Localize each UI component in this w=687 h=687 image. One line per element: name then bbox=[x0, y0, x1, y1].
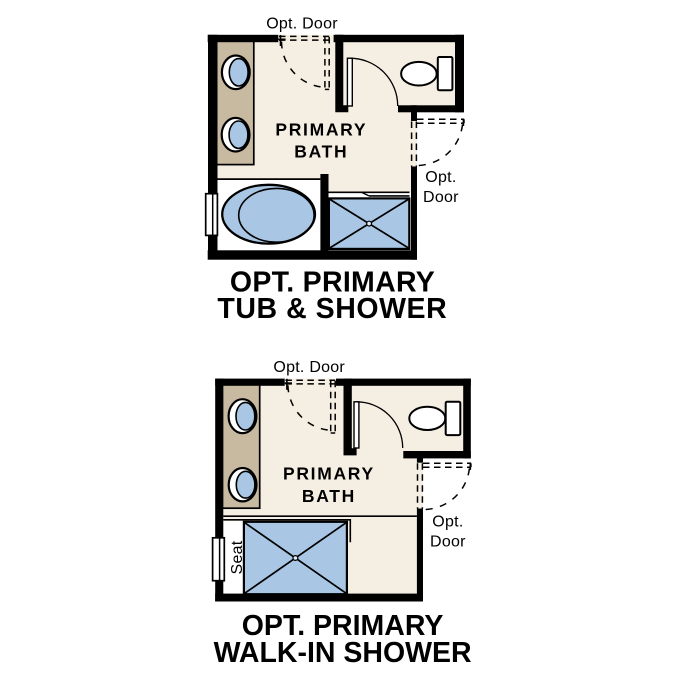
svg-text:PRIMARY: PRIMARY bbox=[283, 463, 375, 483]
svg-text:WALK-IN SHOWER: WALK-IN SHOWER bbox=[214, 637, 472, 669]
svg-text:Opt.: Opt. bbox=[432, 514, 463, 531]
svg-text:Opt. Door: Opt. Door bbox=[266, 16, 338, 33]
svg-text:Seat: Seat bbox=[229, 540, 246, 574]
svg-text:Opt.: Opt. bbox=[425, 169, 456, 186]
svg-text:Opt. Door: Opt. Door bbox=[273, 359, 345, 376]
svg-text:BATH: BATH bbox=[302, 486, 356, 506]
svg-text:TUB & SHOWER: TUB & SHOWER bbox=[217, 293, 447, 325]
svg-text:Door: Door bbox=[423, 189, 459, 206]
svg-text:BATH: BATH bbox=[294, 141, 348, 161]
svg-text:Door: Door bbox=[430, 534, 466, 551]
svg-text:PRIMARY: PRIMARY bbox=[275, 119, 367, 139]
